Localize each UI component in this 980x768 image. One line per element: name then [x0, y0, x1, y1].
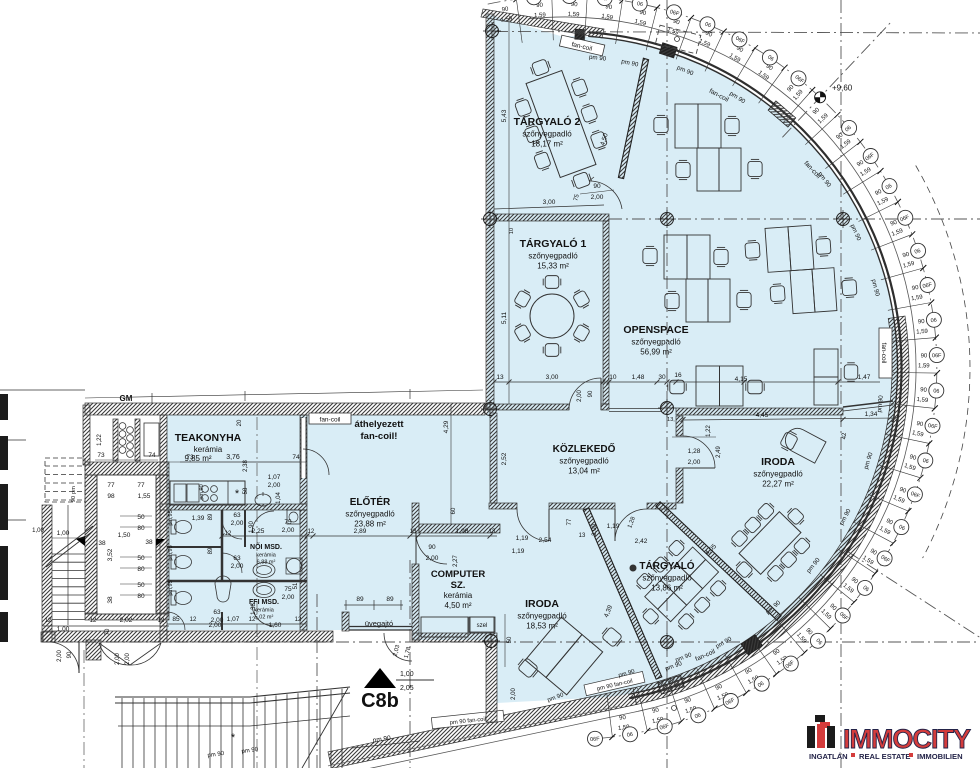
svg-text:90: 90 [428, 544, 436, 551]
svg-text:szőnyegpadló: szőnyegpadló [517, 612, 567, 621]
svg-text:szőnyegpadló: szőnyegpadló [559, 457, 609, 466]
svg-text:63: 63 [213, 609, 221, 616]
svg-text:90: 90 [921, 353, 928, 359]
svg-text:SZ.: SZ. [451, 580, 466, 591]
svg-text:77: 77 [567, 518, 573, 525]
svg-text:06F: 06F [590, 736, 601, 743]
svg-text:1,00: 1,00 [32, 528, 44, 534]
svg-text:fan-coil: fan-coil [880, 343, 887, 365]
svg-text:szőnyegpadló: szőnyegpadló [522, 130, 572, 139]
svg-text:1,00: 1,00 [57, 530, 70, 537]
svg-text:1,07: 1,07 [227, 616, 240, 623]
svg-text:5,11: 5,11 [501, 312, 508, 325]
svg-text:85: 85 [172, 616, 180, 623]
svg-text:80: 80 [137, 566, 145, 573]
svg-text:98: 98 [107, 493, 115, 500]
svg-text:szőnyegpadló: szőnyegpadló [528, 252, 578, 261]
svg-text:NŐI MSD.: NŐI MSD. [250, 542, 282, 551]
svg-text:.10: .10 [607, 374, 616, 381]
svg-text:75: 75 [284, 519, 292, 526]
svg-text:18,17 m²: 18,17 m² [531, 140, 563, 149]
svg-text:üvegajtó: üvegajtó [365, 619, 393, 628]
svg-text:fan-coil: fan-coil [320, 417, 342, 424]
svg-text:fan-coil!: fan-coil! [361, 431, 398, 442]
svg-text:38: 38 [145, 539, 153, 546]
svg-text:1,59: 1,59 [916, 329, 929, 336]
svg-text:1,19: 1,19 [512, 548, 525, 555]
svg-text:50: 50 [137, 514, 145, 521]
svg-text:22,27 m²: 22,27 m² [762, 480, 794, 489]
svg-text:12: 12 [249, 617, 256, 623]
svg-text:06: 06 [933, 388, 939, 394]
svg-text:1,50: 1,50 [118, 532, 131, 539]
svg-text:2,02: 2,02 [120, 617, 133, 624]
svg-text:4,50 m²: 4,50 m² [444, 601, 471, 610]
svg-text:74: 74 [292, 454, 300, 461]
svg-text:60: 60 [451, 507, 457, 514]
svg-text:89: 89 [208, 547, 214, 554]
svg-text:1,98: 1,98 [456, 528, 469, 535]
svg-text:COMPUTER: COMPUTER [431, 569, 486, 580]
svg-text:3,52: 3,52 [107, 548, 114, 561]
svg-text:2,00: 2,00 [592, 524, 598, 536]
svg-text:pm,90: pm,90 [199, 484, 205, 499]
svg-text:2,00: 2,00 [231, 520, 244, 527]
svg-text:5,02 m²: 5,02 m² [255, 615, 274, 621]
svg-text:pm,95: pm,95 [168, 580, 174, 595]
svg-text:20: 20 [237, 419, 243, 426]
svg-text:pm,95: pm,95 [168, 510, 174, 525]
svg-text:80: 80 [137, 593, 145, 600]
svg-text:2,00: 2,00 [231, 563, 244, 570]
svg-text:IRODA: IRODA [525, 598, 559, 610]
svg-text:2,00: 2,00 [268, 482, 281, 489]
svg-text:KÖZLEKEDŐ: KÖZLEKEDŐ [553, 442, 616, 455]
svg-text:77: 77 [137, 482, 145, 489]
svg-text:06: 06 [626, 732, 633, 739]
svg-text:2,89: 2,89 [354, 528, 367, 535]
svg-text:16: 16 [674, 372, 682, 379]
svg-text:*: * [231, 732, 236, 744]
svg-text:12: 12 [45, 618, 52, 624]
svg-text:13,04 m²: 13,04 m² [568, 467, 600, 476]
svg-text:13: 13 [579, 533, 586, 539]
svg-text:kerámia: kerámia [254, 608, 275, 614]
svg-text:2,00: 2,00 [209, 622, 222, 629]
svg-text:50: 50 [507, 636, 513, 643]
svg-text:6,88 m²: 6,88 m² [257, 560, 276, 566]
svg-text:80: 80 [137, 525, 145, 532]
svg-text:szőnyegpadló: szőnyegpadló [642, 574, 692, 583]
svg-text:OPENSPACE: OPENSPACE [623, 324, 688, 336]
svg-text:63: 63 [233, 512, 241, 519]
svg-text:2,00: 2,00 [115, 653, 121, 665]
svg-text:1,59: 1,59 [918, 363, 930, 369]
svg-text:1,07: 1,07 [268, 474, 281, 481]
svg-text:2,00: 2,00 [57, 650, 63, 662]
svg-text:13: 13 [489, 529, 496, 535]
svg-text:3,76: 3,76 [226, 454, 240, 461]
svg-text:2,00: 2,00 [125, 653, 131, 665]
svg-text:TÁRGYALÓ: TÁRGYALÓ [639, 559, 694, 572]
svg-text:C8b: C8b [361, 690, 399, 712]
svg-text:13,86 m²: 13,86 m² [651, 584, 683, 593]
svg-text:1,39: 1,39 [192, 515, 205, 522]
svg-text:2,38: 2,38 [243, 460, 249, 472]
svg-text:50: 50 [137, 582, 145, 589]
svg-text:90: 90 [918, 319, 926, 326]
svg-text:1,60: 1,60 [269, 622, 282, 629]
svg-text:+9,60: +9,60 [832, 83, 853, 92]
svg-text:12: 12 [225, 531, 232, 537]
svg-text:szőnyegpadló: szőnyegpadló [631, 338, 681, 347]
svg-text:1,22: 1,22 [97, 434, 103, 446]
svg-text:2,42: 2,42 [635, 538, 648, 545]
svg-text:1,28: 1,28 [688, 448, 701, 455]
svg-text:89: 89 [386, 596, 394, 603]
svg-text:63: 63 [233, 555, 241, 562]
svg-text:2,00: 2,00 [577, 390, 583, 402]
svg-text:2,00: 2,00 [426, 555, 439, 562]
svg-text:42: 42 [842, 432, 848, 439]
svg-text:TEAKONYHA: TEAKONYHA [175, 432, 242, 444]
svg-text:4,45: 4,45 [756, 412, 769, 419]
svg-text:90: 90 [588, 390, 594, 397]
svg-text:REAL ESTATE: REAL ESTATE [859, 752, 910, 761]
svg-text:12: 12 [295, 617, 302, 623]
svg-text:30: 30 [658, 374, 666, 381]
svg-text:2,05: 2,05 [400, 685, 414, 692]
svg-text:38: 38 [107, 596, 114, 604]
svg-text:5,43: 5,43 [501, 109, 508, 122]
svg-text:szőnyegpadló: szőnyegpadló [345, 510, 395, 519]
svg-text:ELŐTÉR: ELŐTÉR [350, 495, 391, 508]
svg-text:06: 06 [636, 1, 643, 8]
svg-text:12: 12 [158, 618, 165, 624]
svg-text:56,99 m²: 56,99 m² [640, 348, 672, 357]
svg-text:13: 13 [496, 374, 504, 381]
svg-text:1,59: 1,59 [568, 12, 581, 19]
svg-text:51: 51 [293, 582, 299, 589]
svg-text:73: 73 [97, 452, 105, 459]
svg-text:1,19: 1,19 [607, 523, 620, 530]
svg-text:2,00: 2,00 [511, 688, 517, 700]
svg-text:90: 90 [67, 651, 73, 658]
svg-text:3,00: 3,00 [546, 374, 559, 381]
svg-text:1,19: 1,19 [516, 535, 529, 542]
svg-text:TÁRGYALÓ 1: TÁRGYALÓ 1 [520, 237, 587, 250]
svg-text:IRODA: IRODA [761, 456, 795, 468]
svg-text:3,00: 3,00 [543, 199, 556, 206]
svg-text:1,38: 1,38 [251, 603, 257, 615]
svg-text:GM: GM [120, 394, 133, 403]
svg-text:1,55: 1,55 [138, 493, 151, 500]
svg-text:58: 58 [243, 487, 249, 494]
svg-text:áthelyezett: áthelyezett [354, 419, 404, 430]
svg-text:90: 90 [920, 387, 928, 394]
svg-text:kerámia: kerámia [256, 553, 277, 559]
svg-text:4,29: 4,29 [443, 420, 450, 433]
svg-text:2,00: 2,00 [282, 594, 295, 601]
svg-text:2,52: 2,52 [501, 452, 508, 465]
svg-text:4,15: 4,15 [735, 376, 748, 383]
svg-text:89: 89 [208, 513, 214, 520]
svg-text:89: 89 [356, 596, 364, 603]
svg-text:06: 06 [930, 317, 937, 324]
svg-text:12: 12 [90, 618, 97, 624]
svg-text:szel: szel [477, 623, 488, 629]
svg-text:.12: .12 [306, 529, 315, 535]
svg-text:1,00: 1,00 [400, 671, 414, 678]
svg-text:IMMOCITY: IMMOCITY [843, 724, 971, 754]
svg-text:*: * [235, 488, 240, 500]
svg-text:1,47: 1,47 [858, 374, 871, 381]
svg-text:IMMOBILIEN: IMMOBILIEN [917, 752, 963, 761]
svg-text:18,53 m²: 18,53 m² [526, 622, 558, 631]
svg-text:90: 90 [71, 496, 77, 502]
svg-text:TÁRGYALÓ 2: TÁRGYALÓ 2 [514, 115, 581, 128]
svg-text:pm: pm [71, 486, 77, 494]
svg-text:38: 38 [98, 540, 106, 547]
svg-text:1,00: 1,00 [57, 626, 70, 633]
svg-text:1,90: 1,90 [249, 521, 255, 533]
svg-text:2,00: 2,00 [688, 459, 701, 466]
svg-text:74: 74 [148, 452, 156, 459]
svg-text:13,: 13, [667, 417, 675, 423]
svg-text:12: 12 [190, 617, 197, 623]
svg-text:1,34: 1,34 [865, 411, 878, 418]
svg-text:2,00: 2,00 [591, 194, 604, 201]
svg-text:75: 75 [284, 586, 292, 593]
svg-text:kerámia: kerámia [194, 445, 223, 454]
svg-text:13: 13 [410, 529, 417, 535]
svg-text:kerámia: kerámia [444, 591, 473, 600]
svg-text:1,22: 1,22 [706, 425, 712, 437]
svg-text:50: 50 [137, 555, 145, 562]
svg-text:1,48: 1,48 [632, 374, 645, 381]
svg-text:73: 73 [186, 454, 194, 461]
svg-text:77: 77 [107, 482, 115, 489]
svg-text:szőnyegpadló: szőnyegpadló [753, 470, 803, 479]
svg-text:pm,95: pm,95 [168, 545, 174, 560]
svg-text:2,00: 2,00 [282, 527, 295, 534]
svg-text:10: 10 [509, 228, 515, 234]
svg-text:2,54: 2,54 [539, 537, 552, 544]
svg-text:70: 70 [105, 628, 111, 635]
svg-text:90: 90 [593, 183, 601, 190]
svg-text:2,27: 2,27 [453, 555, 459, 567]
svg-text:1,04: 1,04 [276, 492, 282, 504]
svg-text:06F: 06F [932, 353, 942, 359]
svg-text:INGATLÁN: INGATLÁN [809, 752, 848, 761]
svg-text:2,49: 2,49 [716, 446, 722, 458]
svg-text:15,33 m²: 15,33 m² [537, 262, 569, 271]
